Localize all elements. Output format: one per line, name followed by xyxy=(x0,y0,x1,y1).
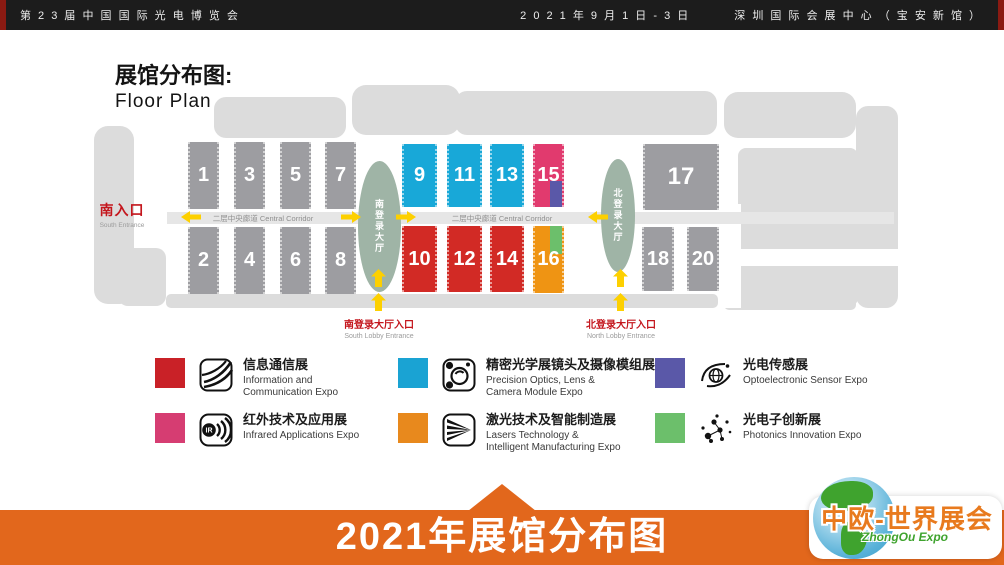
hall-number: 6 xyxy=(290,249,301,272)
legend-item: 激光技术及智能制造展Lasers Technology & Intelligen… xyxy=(398,413,621,454)
hall-1: 1 xyxy=(188,142,219,209)
hall-number: 20 xyxy=(692,248,714,271)
legend-label-zh: 信息通信展 xyxy=(243,358,338,373)
hall-20: 20 xyxy=(687,227,719,291)
page: 第 2 3 届 中 国 国 际 光 电 博 览 会 2 0 2 1 年 9 月 … xyxy=(0,0,1004,565)
south-lobby-entrance-label: 南登录大厅入口 South Lobby Entrance xyxy=(314,316,444,340)
arrow-east-icon xyxy=(396,211,416,223)
legend-label-en: Lasers Technology & Intelligent Manufact… xyxy=(486,430,621,454)
legend-label-en: Precision Optics, Lens & Camera Module E… xyxy=(486,375,655,399)
legend-label-en: Optoelectronic Sensor Expo xyxy=(743,375,868,387)
hall-9: 9 xyxy=(402,144,437,207)
legend-label-en: Infrared Applications Expo xyxy=(243,430,359,442)
hall-4: 4 xyxy=(234,227,265,294)
central-corridor-label-west: 二层中央廊道 Central Corridor xyxy=(203,213,323,224)
legend-label: 激光技术及智能制造展Lasers Technology & Intelligen… xyxy=(486,413,621,454)
legend-label-zh: 红外技术及应用展 xyxy=(243,413,359,428)
hall-12: 12 xyxy=(447,226,482,292)
arrow-up-icon xyxy=(613,293,628,311)
legend-item: 精密光学展镜头及摄像模组展Precision Optics, Lens & Ca… xyxy=(398,358,655,399)
arrow-up-icon xyxy=(371,293,386,311)
hall-number: 3 xyxy=(244,164,255,187)
hall-number: 14 xyxy=(496,248,518,271)
hall-number: 1 xyxy=(198,164,209,187)
legend-label-zh: 精密光学展镜头及摄像模组展 xyxy=(486,358,655,373)
hall-number: 7 xyxy=(335,164,346,187)
top-bar: 第 2 3 届 中 国 国 际 光 电 博 览 会 2 0 2 1 年 9 月 … xyxy=(0,0,1004,30)
north-lobby-entrance-label: 北登录大厅入口 North Lobby Entrance xyxy=(556,316,686,340)
hall-7: 7 xyxy=(325,142,356,209)
expo-venue: 深 圳 国 际 会 展 中 心 （ 宝 安 新 馆 ） xyxy=(734,7,982,23)
logo-text-en: ZhongOu Expo xyxy=(845,530,965,544)
arrow-west-icon xyxy=(588,211,608,223)
legend-label: 光电子创新展Photonics Innovation Expo xyxy=(743,413,861,442)
hall-10: 10 xyxy=(402,226,437,292)
hall-3: 3 xyxy=(234,142,265,209)
optoelectronic-sensor-icon xyxy=(699,358,733,392)
hall-11: 11 xyxy=(447,144,482,207)
legend-color-swatch xyxy=(398,413,428,443)
legend-item: 光电传感展Optoelectronic Sensor Expo xyxy=(655,358,868,392)
hall-number: 17 xyxy=(668,163,695,191)
legend-color-swatch xyxy=(155,413,185,443)
legend-item: 光电子创新展Photonics Innovation Expo xyxy=(655,413,861,447)
infrared-icon: IR xyxy=(199,413,233,447)
expo-date: 2 0 2 1 年 9 月 1 日 - 3 日 xyxy=(520,7,690,23)
hall-13: 13 xyxy=(490,144,524,207)
hall-8: 8 xyxy=(325,227,356,294)
hall-number: 9 xyxy=(414,164,425,187)
photonics-icon xyxy=(699,413,733,447)
legend-label: 光电传感展Optoelectronic Sensor Expo xyxy=(743,358,868,387)
top-bar-right-accent xyxy=(998,0,1004,30)
hall-5: 5 xyxy=(280,142,311,209)
legend-item: 信息通信展Information and Communication Expo xyxy=(155,358,338,399)
hall-number: 12 xyxy=(453,248,475,271)
hall-number: 4 xyxy=(244,249,255,272)
camera-lens-icon xyxy=(442,358,476,392)
hall-number: 13 xyxy=(496,164,518,187)
hall-number: 15 xyxy=(537,164,559,187)
svg-text:IR: IR xyxy=(206,428,213,435)
laser-icon xyxy=(442,413,476,447)
legend-label-zh: 激光技术及智能制造展 xyxy=(486,413,621,428)
expo-title: 第 2 3 届 中 国 国 际 光 电 博 览 会 xyxy=(20,7,240,23)
legend-color-swatch xyxy=(398,358,428,388)
legend-color-swatch xyxy=(655,358,685,388)
south-entrance-label: 南入口 South Entrance xyxy=(76,200,168,229)
hall-2: 2 xyxy=(188,227,219,294)
legend-label: 红外技术及应用展Infrared Applications Expo xyxy=(243,413,359,442)
legend-label-en: Photonics Innovation Expo xyxy=(743,430,861,442)
legend-item: IR红外技术及应用展Infrared Applications Expo xyxy=(155,413,359,447)
hall-16: 16 xyxy=(533,226,564,293)
floor-plan-title-zh: 展馆分布图: xyxy=(115,58,232,90)
footer-banner-pointer xyxy=(468,484,536,511)
legend-label-zh: 光电子创新展 xyxy=(743,413,861,428)
hall-6: 6 xyxy=(280,227,311,294)
hall-number: 8 xyxy=(335,249,346,272)
hall-number: 10 xyxy=(408,248,430,271)
legend-color-swatch xyxy=(155,358,185,388)
hall-15: 15 xyxy=(533,144,564,207)
arrow-east-icon xyxy=(341,211,361,223)
arrow-west-icon xyxy=(181,211,201,223)
hall-number: 18 xyxy=(647,248,669,271)
hall-18: 18 xyxy=(642,227,674,291)
central-corridor-label-east: 二层中央廊道 Central Corridor xyxy=(442,213,562,224)
top-bar-left-accent xyxy=(0,0,6,30)
hall-number: 11 xyxy=(454,164,475,187)
hall-number: 5 xyxy=(290,164,301,187)
legend-color-swatch xyxy=(655,413,685,443)
fiber-optics-icon xyxy=(199,358,233,392)
hall-17: 17 xyxy=(643,144,719,210)
legend-label: 精密光学展镜头及摄像模组展Precision Optics, Lens & Ca… xyxy=(486,358,655,399)
legend-label: 信息通信展Information and Communication Expo xyxy=(243,358,338,399)
north-lobby-label: 北登录大厅 xyxy=(612,188,625,243)
legend-label-en: Information and Communication Expo xyxy=(243,375,338,399)
hall-number: 16 xyxy=(537,248,559,271)
arrow-up-icon xyxy=(613,269,628,287)
legend-label-zh: 光电传感展 xyxy=(743,358,868,373)
hall-number: 2 xyxy=(198,249,209,272)
hall-14: 14 xyxy=(490,226,524,292)
arrow-up-icon xyxy=(371,269,386,287)
south-lobby-label: 南登录大厅 xyxy=(373,199,386,254)
